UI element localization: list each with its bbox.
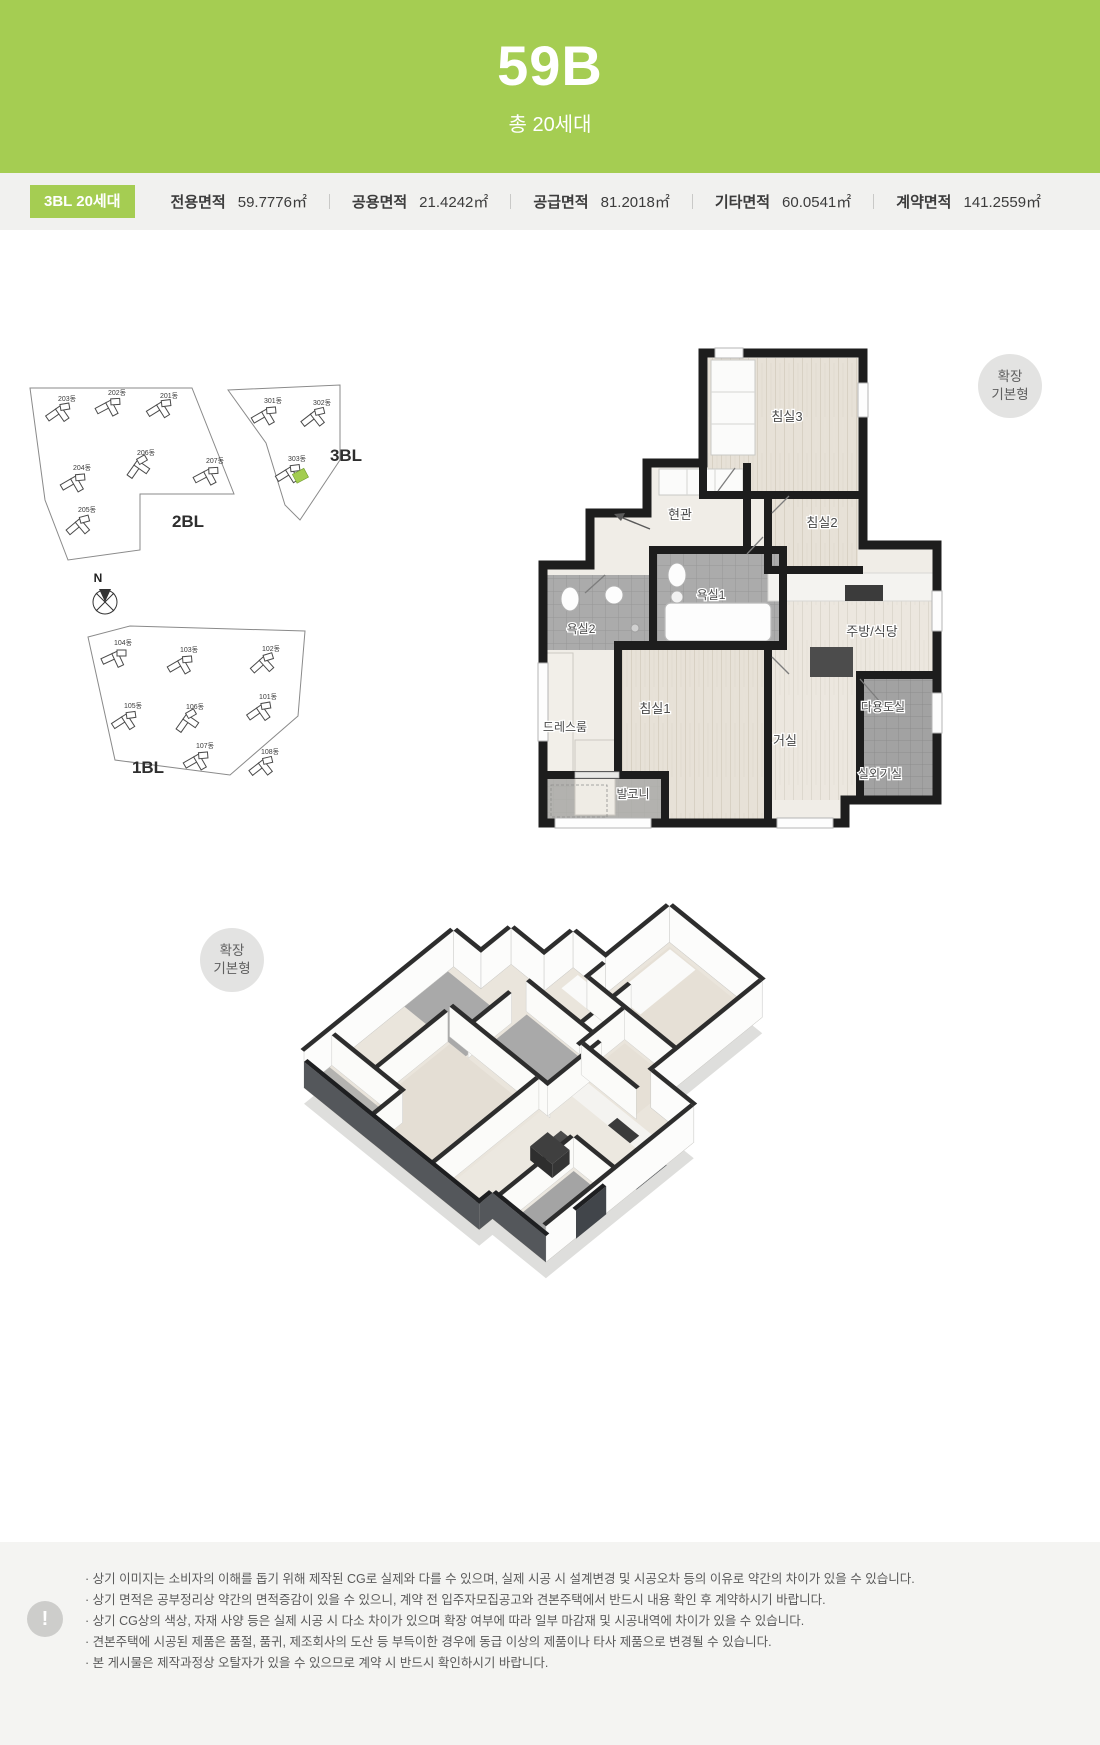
- bldg-105: 105동: [124, 702, 143, 710]
- bldg-207: 207동: [206, 457, 225, 465]
- disclaimer-note: · 상기 이미지는 소비자의 이해를 돕기 위해 제작된 CG로 실제와 다를 …: [85, 1569, 1075, 1590]
- unit-households: 총 20세대: [0, 108, 1100, 137]
- bldg-303: 303동: [288, 455, 307, 463]
- area-value: 81.2018㎡: [601, 191, 670, 212]
- bldg-104: 104동: [114, 639, 133, 647]
- room-outdoor-unit: 실외기실: [858, 767, 902, 781]
- area-value: 59.7776㎡: [238, 191, 307, 212]
- expansion-type-badge-3d: 확장 기본형: [200, 928, 264, 992]
- exclamation-icon: !: [27, 1601, 63, 1637]
- room-entry: 현관: [668, 507, 692, 522]
- site-block-2bl: 201동 202동 203동 204동 205동 206동 207동 2BL: [30, 388, 234, 560]
- area-label: 공용면적: [352, 191, 407, 212]
- room-utility: 다용도실: [861, 700, 905, 714]
- bldg-206: 206동: [137, 449, 156, 457]
- disclaimer-note: · 상기 CG상의 색상, 자재 사양 등은 실제 시공 시 다소 차이가 있으…: [85, 1611, 1075, 1632]
- label-3bl: 3BL: [330, 446, 362, 465]
- floor-plan-3d: [280, 840, 840, 1310]
- disclaimer-footer: ! · 상기 이미지는 소비자의 이해를 돕기 위해 제작된 CG로 실제와 다…: [0, 1542, 1100, 1745]
- bldg-302: 302동: [313, 399, 332, 407]
- badge-line2: 기본형: [213, 960, 250, 978]
- bldg-203: 203동: [58, 395, 77, 403]
- area-item: 공용면적 21.4242㎡: [330, 191, 510, 212]
- bldg-205: 205동: [78, 506, 97, 514]
- site-block-1bl: 101동 102동 103동 104동 105동 106동 107동 108동 …: [88, 626, 305, 782]
- disclaimer-notes: · 상기 이미지는 소비자의 이해를 돕기 위해 제작된 CG로 실제와 다를 …: [85, 1569, 1075, 1674]
- bldg-106: 106동: [186, 703, 205, 711]
- label-1bl: 1BL: [132, 758, 164, 777]
- room-bath2: 욕실2: [567, 622, 596, 636]
- badge-line1: 확장: [998, 368, 1023, 386]
- area-items: 전용면적 59.7776㎡ 공용면적 21.4242㎡ 공급면적 81.2018…: [149, 191, 1064, 212]
- room-bedroom1: 침실1: [639, 701, 670, 716]
- room-dressroom: 드레스룸: [543, 720, 587, 734]
- area-label: 공급면적: [533, 191, 588, 212]
- area-item: 공급면적 81.2018㎡: [511, 191, 691, 212]
- room-bedroom2: 침실2: [806, 515, 837, 530]
- room-balcony: 발코니: [616, 787, 649, 801]
- disclaimer-note: · 본 게시물은 제작과정상 오탈자가 있을 수 있으므로 계약 시 반드시 확…: [85, 1653, 1075, 1674]
- room-bedroom3: 침실3: [771, 409, 802, 424]
- area-item: 기타면적 60.0541㎡: [693, 191, 873, 212]
- bldg-107: 107동: [196, 742, 215, 750]
- area-item: 계약면적 141.2559㎡: [874, 191, 1063, 212]
- compass-icon: N: [93, 571, 117, 614]
- area-label: 기타면적: [715, 191, 770, 212]
- room-living: 거실: [773, 733, 797, 748]
- bldg-301: 301동: [264, 397, 283, 405]
- bldg-108: 108동: [261, 748, 280, 756]
- label-2bl: 2BL: [172, 512, 204, 531]
- area-value: 60.0541㎡: [782, 191, 851, 212]
- svg-text:N: N: [94, 571, 103, 585]
- bldg-103: 103동: [180, 646, 199, 654]
- expansion-type-badge-2d: 확장 기본형: [978, 354, 1042, 418]
- bldg-202: 202동: [108, 389, 127, 397]
- area-value: 141.2559㎡: [963, 191, 1041, 212]
- area-value: 21.4242㎡: [419, 191, 488, 212]
- page: 59B 총 20세대 3BL 20세대 전용면적 59.7776㎡ 공용면적 2…: [0, 0, 1100, 1745]
- area-info-bar: 3BL 20세대 전용면적 59.7776㎡ 공용면적 21.4242㎡ 공급면…: [0, 173, 1100, 230]
- disclaimer-note: · 견본주택에 시공된 제품은 품절, 품귀, 제조회사의 도산 등 부득이한 …: [85, 1632, 1075, 1653]
- site-block-3bl: 301동 302동 303동 3BL: [228, 385, 362, 520]
- badge-line2: 기본형: [991, 386, 1028, 404]
- unit-header: 59B 총 20세대: [0, 0, 1100, 173]
- bldg-102: 102동: [262, 645, 281, 653]
- bldg-201: 201동: [160, 392, 179, 400]
- room-kitchen: 주방/식당: [846, 624, 897, 639]
- bldg-204: 204동: [73, 464, 92, 472]
- area-label: 전용면적: [171, 191, 226, 212]
- unit-type-title: 59B: [0, 0, 1100, 94]
- site-plan: 201동 202동 203동 204동 205동 206동 207동 2BL 3…: [10, 335, 380, 785]
- block-badge: 3BL 20세대: [30, 185, 135, 218]
- bldg-101: 101동: [259, 693, 278, 701]
- floor-plan-2d: 침실3 침실2 현관 욕실1 욕실2 주방/식당 다용도실 실외기실 거실 침실…: [515, 345, 945, 835]
- disclaimer-note: · 상기 면적은 공부정리상 약간의 면적증감이 있을 수 있으니, 계약 전 …: [85, 1590, 1075, 1611]
- badge-line1: 확장: [220, 942, 245, 960]
- room-bath1: 욕실1: [697, 588, 726, 602]
- area-label: 계약면적: [896, 191, 951, 212]
- area-item: 전용면적 59.7776㎡: [149, 191, 329, 212]
